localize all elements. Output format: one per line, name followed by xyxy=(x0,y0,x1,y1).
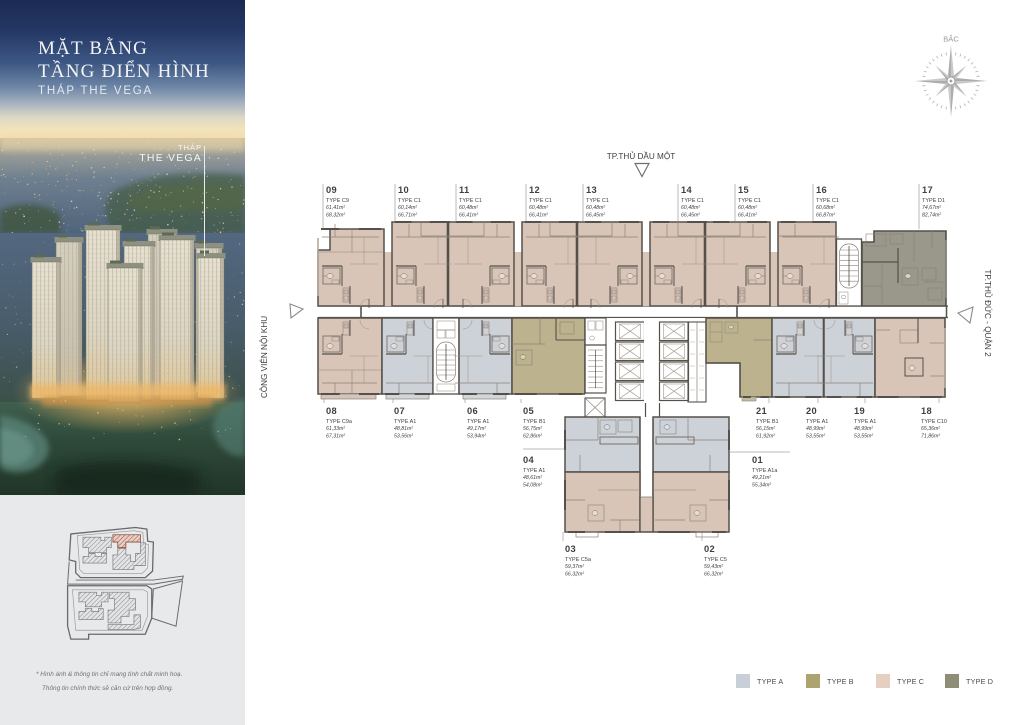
svg-text:TYPE C1: TYPE C1 xyxy=(738,198,761,204)
svg-text:61,41m²: 61,41m² xyxy=(326,205,345,211)
svg-text:66,41m²: 66,41m² xyxy=(459,213,478,219)
svg-text:12: 12 xyxy=(529,185,540,195)
svg-text:10: 10 xyxy=(398,185,409,195)
svg-text:CÔNG VIÊN NỘI KHU: CÔNG VIÊN NỘI KHU xyxy=(259,316,269,398)
svg-text:61,33m²: 61,33m² xyxy=(326,426,345,432)
svg-text:74,67m²: 74,67m² xyxy=(922,205,941,211)
svg-text:19: 19 xyxy=(854,406,865,416)
svg-text:02: 02 xyxy=(704,544,715,554)
svg-text:TYPE C5: TYPE C5 xyxy=(704,557,727,563)
svg-text:48,61m²: 48,61m² xyxy=(523,475,542,481)
svg-text:53,55m²: 53,55m² xyxy=(806,434,825,440)
svg-text:04: 04 xyxy=(523,455,534,465)
svg-text:06: 06 xyxy=(467,406,478,416)
svg-text:60,48m²: 60,48m² xyxy=(681,205,700,211)
svg-text:56,75m²: 56,75m² xyxy=(523,426,542,432)
svg-text:15: 15 xyxy=(738,185,749,195)
svg-text:07: 07 xyxy=(394,406,405,416)
svg-text:49,21m²: 49,21m² xyxy=(752,475,771,481)
svg-text:66,41m²: 66,41m² xyxy=(738,213,757,219)
svg-text:53,55m²: 53,55m² xyxy=(854,434,873,440)
svg-text:71,86m²: 71,86m² xyxy=(921,434,940,440)
svg-text:14: 14 xyxy=(681,185,692,195)
svg-text:TYPE A1: TYPE A1 xyxy=(806,419,828,425)
svg-text:48,81m²: 48,81m² xyxy=(394,426,413,432)
svg-text:16: 16 xyxy=(816,185,827,195)
svg-text:TYPE B: TYPE B xyxy=(827,677,854,686)
svg-text:TYPE D: TYPE D xyxy=(966,677,993,686)
svg-text:59,43m²: 59,43m² xyxy=(704,564,723,570)
svg-text:66,41m²: 66,41m² xyxy=(529,213,548,219)
svg-text:TYPE C: TYPE C xyxy=(897,677,924,686)
svg-text:TYPE D1: TYPE D1 xyxy=(922,198,945,204)
svg-text:TYPE C1: TYPE C1 xyxy=(529,198,552,204)
svg-text:54,08m²: 54,08m² xyxy=(523,483,542,489)
svg-text:TYPE C5a: TYPE C5a xyxy=(565,557,592,563)
svg-text:11: 11 xyxy=(459,185,469,195)
svg-text:60,48m²: 60,48m² xyxy=(459,205,478,211)
svg-text:49,17m²: 49,17m² xyxy=(467,426,486,432)
svg-text:TYPE C1: TYPE C1 xyxy=(586,198,609,204)
svg-text:21: 21 xyxy=(756,406,767,416)
svg-text:TYPE A1: TYPE A1 xyxy=(523,468,545,474)
svg-text:67,31m²: 67,31m² xyxy=(326,434,345,440)
svg-text:18: 18 xyxy=(921,406,932,416)
svg-text:17: 17 xyxy=(922,185,933,195)
svg-text:66,87m²: 66,87m² xyxy=(816,213,835,219)
svg-text:56,15m²: 56,15m² xyxy=(756,426,775,432)
svg-text:59,37m²: 59,37m² xyxy=(565,564,584,570)
svg-text:TYPE C1: TYPE C1 xyxy=(398,198,421,204)
svg-text:TYPE B1: TYPE B1 xyxy=(523,419,546,425)
svg-text:61,92m²: 61,92m² xyxy=(756,434,775,440)
svg-text:66,45m²: 66,45m² xyxy=(681,213,700,219)
svg-text:66,71m²: 66,71m² xyxy=(398,213,417,219)
svg-text:20: 20 xyxy=(806,406,817,416)
svg-text:62,86m²: 62,86m² xyxy=(523,434,542,440)
svg-text:60,48m²: 60,48m² xyxy=(529,205,548,211)
svg-text:TYPE C1: TYPE C1 xyxy=(459,198,482,204)
svg-text:TYPE A1: TYPE A1 xyxy=(467,419,489,425)
svg-text:68,32m²: 68,32m² xyxy=(326,213,345,219)
svg-text:TP.THỦ ĐỨC - QUẬN 2: TP.THỦ ĐỨC - QUẬN 2 xyxy=(983,269,994,357)
svg-text:48,99m²: 48,99m² xyxy=(806,426,825,432)
svg-text:TP.THỦ DẦU MỘT: TP.THỦ DẦU MỘT xyxy=(607,150,676,161)
svg-text:60,14m²: 60,14m² xyxy=(398,205,417,211)
svg-text:65,36m²: 65,36m² xyxy=(921,426,940,432)
svg-text:66,32m²: 66,32m² xyxy=(565,572,584,578)
svg-text:03: 03 xyxy=(565,544,576,554)
svg-text:60,68m²: 60,68m² xyxy=(816,205,835,211)
svg-text:TYPE B1: TYPE B1 xyxy=(756,419,779,425)
svg-text:05: 05 xyxy=(523,406,534,416)
svg-text:TYPE A1a: TYPE A1a xyxy=(752,468,778,474)
svg-text:53,94m²: 53,94m² xyxy=(467,434,486,440)
svg-text:TYPE C9a: TYPE C9a xyxy=(326,419,353,425)
svg-text:TYPE A: TYPE A xyxy=(757,677,783,686)
svg-text:53,56m²: 53,56m² xyxy=(394,434,413,440)
svg-text:66,32m²: 66,32m² xyxy=(704,572,723,578)
svg-text:TYPE A1: TYPE A1 xyxy=(394,419,416,425)
svg-text:TYPE C9: TYPE C9 xyxy=(326,198,349,204)
svg-text:08: 08 xyxy=(326,406,337,416)
svg-text:48,99m²: 48,99m² xyxy=(854,426,873,432)
svg-text:BẮC: BẮC xyxy=(943,35,959,44)
svg-text:TYPE C1: TYPE C1 xyxy=(681,198,704,204)
svg-text:TYPE C1: TYPE C1 xyxy=(816,198,839,204)
svg-text:TYPE C10: TYPE C10 xyxy=(921,419,947,425)
svg-text:TYPE A1: TYPE A1 xyxy=(854,419,876,425)
svg-text:66,45m²: 66,45m² xyxy=(586,213,605,219)
svg-text:55,34m²: 55,34m² xyxy=(752,483,771,489)
svg-text:82,74m²: 82,74m² xyxy=(922,213,941,219)
svg-text:01: 01 xyxy=(752,455,763,465)
svg-text:09: 09 xyxy=(326,185,337,195)
svg-text:60,48m²: 60,48m² xyxy=(586,205,605,211)
svg-text:13: 13 xyxy=(586,185,597,195)
svg-text:60,48m²: 60,48m² xyxy=(738,205,757,211)
